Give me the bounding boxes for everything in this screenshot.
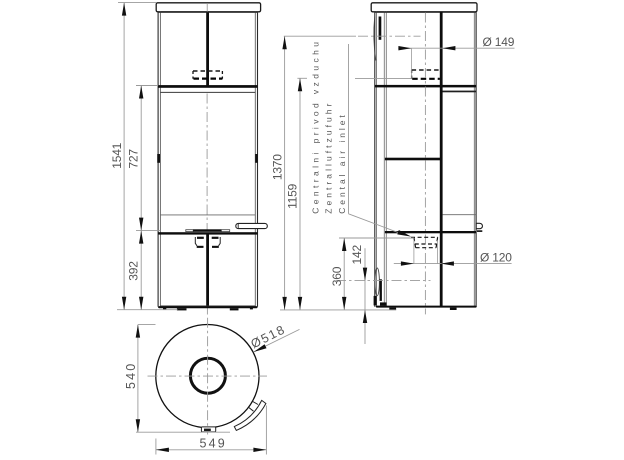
svg-text:142: 142	[350, 245, 364, 265]
svg-text:1541: 1541	[110, 142, 124, 168]
svg-text:Ø 149: Ø 149	[483, 35, 515, 49]
svg-text:360: 360	[330, 266, 344, 286]
svg-text:549: 549	[200, 437, 227, 451]
svg-text:Cental air inlet: Cental air inlet	[337, 112, 347, 214]
svg-text:Centralni privod vzduchu: Centralni privod vzduchu	[310, 39, 320, 214]
svg-text:Ø 120: Ø 120	[480, 250, 512, 264]
svg-text:727: 727	[127, 149, 141, 169]
svg-text:392: 392	[127, 261, 141, 281]
svg-text:1370: 1370	[270, 154, 284, 180]
svg-text:540: 540	[124, 362, 138, 389]
svg-text:1159: 1159	[286, 183, 300, 209]
svg-text:Zentralluftzufuhr: Zentralluftzufuhr	[324, 101, 334, 214]
